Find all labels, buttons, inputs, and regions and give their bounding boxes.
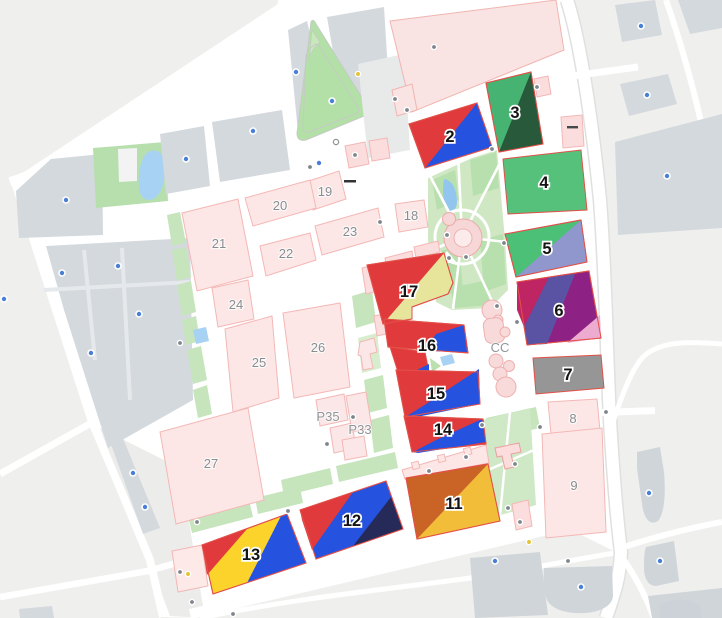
- svg-text:P35: P35: [316, 409, 339, 424]
- svg-text:26: 26: [311, 340, 325, 355]
- svg-text:14: 14: [434, 421, 453, 439]
- svg-text:8: 8: [569, 411, 576, 426]
- svg-text:23: 23: [343, 224, 357, 239]
- svg-text:4: 4: [539, 174, 549, 192]
- svg-text:25: 25: [252, 355, 266, 370]
- svg-text:11: 11: [445, 495, 462, 513]
- svg-text:18: 18: [404, 208, 418, 223]
- svg-text:3: 3: [510, 104, 519, 122]
- svg-text:20: 20: [273, 198, 287, 213]
- svg-text:5: 5: [542, 240, 551, 258]
- svg-text:7: 7: [563, 366, 572, 384]
- svg-text:27: 27: [204, 456, 218, 471]
- svg-text:15: 15: [427, 385, 445, 403]
- svg-text:6: 6: [554, 302, 563, 320]
- svg-text:P33: P33: [348, 422, 371, 437]
- svg-text:24: 24: [229, 297, 243, 312]
- svg-text:9: 9: [570, 478, 577, 493]
- svg-text:12: 12: [343, 512, 361, 530]
- svg-text:16: 16: [418, 337, 436, 355]
- svg-text:17: 17: [400, 283, 418, 301]
- svg-text:2: 2: [445, 128, 454, 146]
- svg-text:13: 13: [242, 546, 260, 564]
- svg-text:CC: CC: [491, 340, 510, 355]
- svg-text:22: 22: [279, 246, 293, 261]
- svg-text:21: 21: [212, 236, 226, 251]
- svg-text:19: 19: [318, 184, 332, 199]
